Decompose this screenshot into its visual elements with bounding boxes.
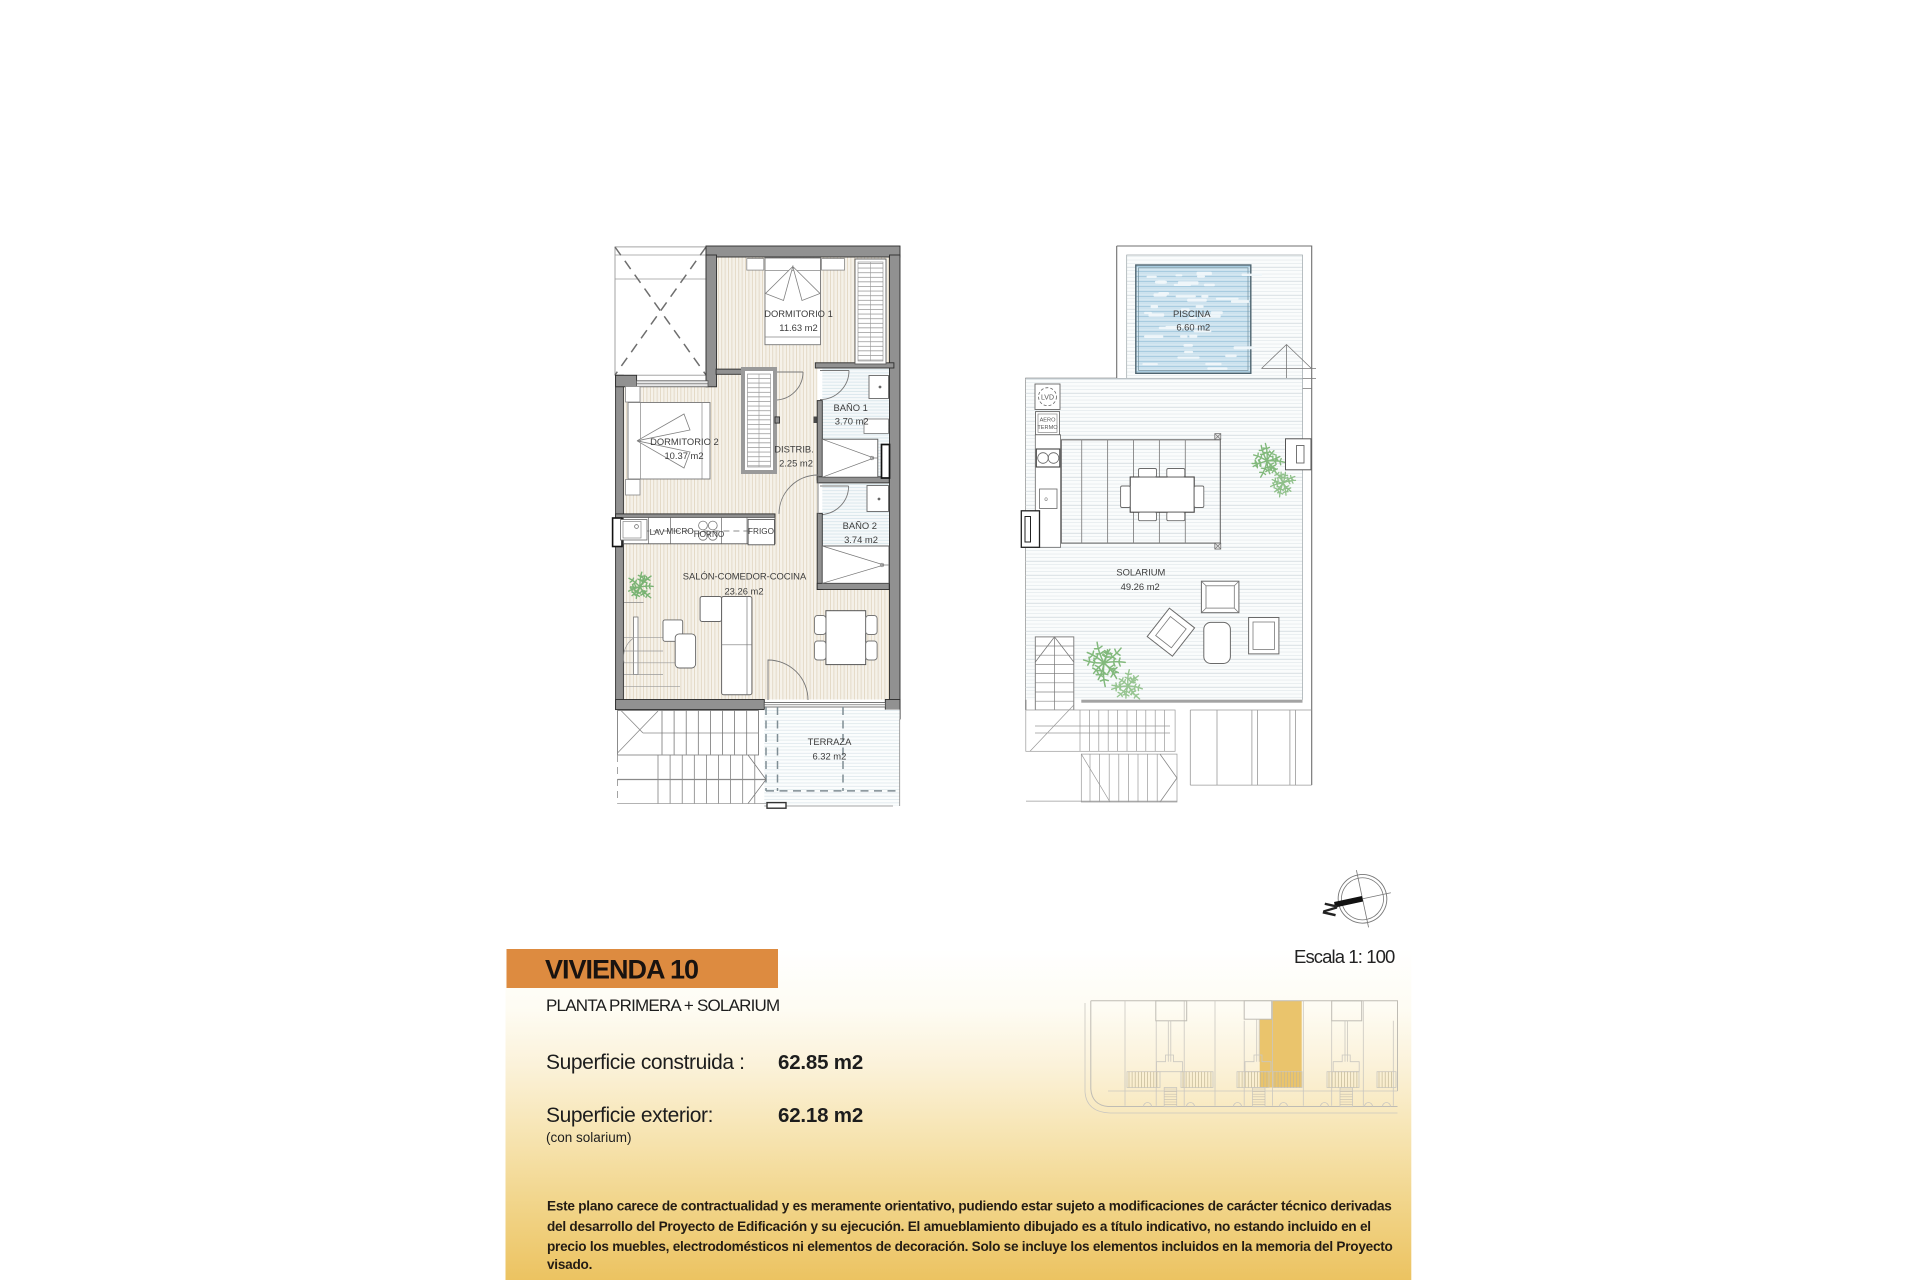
svg-text:Este plano carece de contractu: Este plano carece de contractualidad y e…	[547, 1199, 1392, 1214]
svg-text:62.18 m2: 62.18 m2	[778, 1104, 863, 1127]
svg-text:6.32 m2: 6.32 m2	[812, 751, 846, 762]
svg-text:Superficie exterior:: Superficie exterior:	[546, 1104, 713, 1127]
svg-text:DORMITORIO 2: DORMITORIO 2	[650, 436, 719, 447]
svg-text:PISCINA: PISCINA	[1173, 308, 1211, 319]
svg-text:VIVIENDA 10: VIVIENDA 10	[545, 955, 698, 985]
svg-text:PLANTA PRIMERA + SOLARIUM: PLANTA PRIMERA + SOLARIUM	[546, 996, 779, 1015]
svg-text:del desarrollo del Proyecto de: del desarrollo del Proyecto de Edificaci…	[547, 1219, 1371, 1234]
svg-text:SALÓN-COMEDOR-COCINA: SALÓN-COMEDOR-COCINA	[683, 571, 807, 582]
svg-text:62.85 m2: 62.85 m2	[778, 1051, 863, 1074]
svg-text:6.60 m2: 6.60 m2	[1176, 321, 1210, 332]
svg-text:10.37 m2: 10.37 m2	[664, 450, 703, 461]
svg-text:FRIGO: FRIGO	[748, 527, 774, 536]
svg-text:precio los muebles, electrodom: precio los muebles, electrodomésticos ni…	[547, 1239, 1393, 1254]
svg-text:SOLARIUM: SOLARIUM	[1116, 567, 1165, 578]
svg-text:MICRO: MICRO	[666, 527, 693, 536]
svg-text:LAV: LAV	[650, 528, 665, 537]
svg-text:3.70 m2: 3.70 m2	[835, 416, 869, 427]
svg-text:DISTRIB.: DISTRIB.	[774, 444, 814, 455]
svg-text:visado.: visado.	[547, 1257, 592, 1272]
svg-text:HORNO: HORNO	[694, 530, 724, 539]
svg-text:23.26 m2: 23.26 m2	[724, 586, 763, 597]
svg-text:LVD: LVD	[1041, 395, 1054, 402]
svg-text:Superficie construida :: Superficie construida :	[546, 1051, 745, 1074]
svg-text:Escala 1: 100: Escala 1: 100	[1294, 946, 1395, 967]
svg-text:TERMO: TERMO	[1037, 425, 1058, 431]
svg-text:AERO: AERO	[1040, 418, 1057, 424]
svg-text:BAÑO 2: BAÑO 2	[843, 520, 877, 531]
svg-text:49.26 m2: 49.26 m2	[1121, 581, 1160, 592]
svg-text:(con solarium): (con solarium)	[546, 1130, 632, 1145]
svg-text:BAÑO 1: BAÑO 1	[834, 402, 868, 413]
svg-text:TERRAZA: TERRAZA	[808, 736, 853, 747]
svg-text:DORMITORIO 1: DORMITORIO 1	[764, 308, 833, 319]
svg-text:3.74 m2: 3.74 m2	[844, 534, 878, 545]
svg-text:11.63 m2: 11.63 m2	[779, 322, 817, 333]
svg-text:2.25 m2: 2.25 m2	[779, 458, 813, 469]
